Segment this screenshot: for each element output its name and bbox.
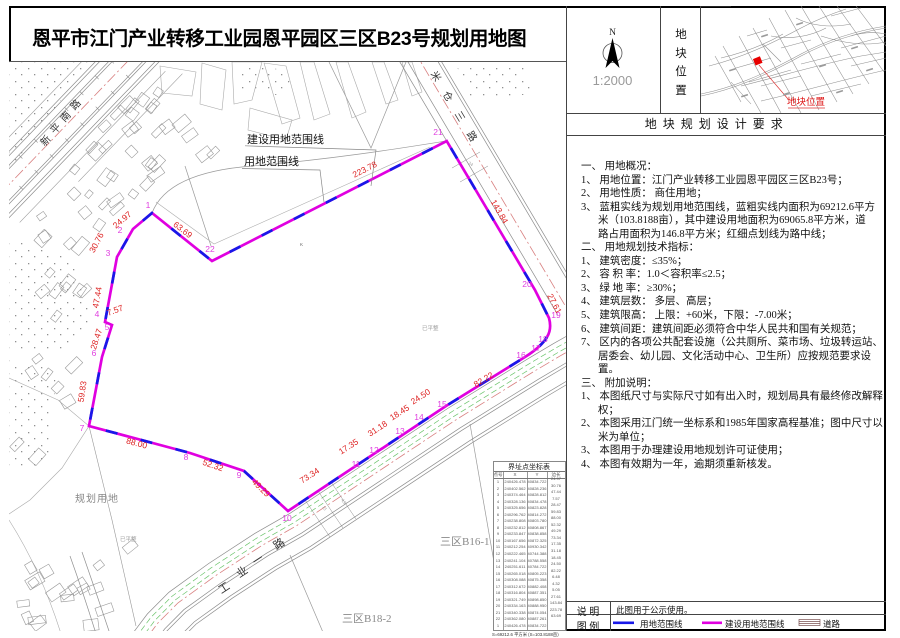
svg-text:19: 19 [551,310,561,320]
svg-text:8: 8 [184,452,189,462]
svg-text:3: 3 [106,248,111,258]
svg-text:已平整: 已平整 [120,535,137,543]
svg-text:13: 13 [395,426,405,436]
svg-text:15: 15 [437,399,447,409]
svg-text:21: 21 [433,127,443,137]
svg-text:11: 11 [352,459,361,469]
svg-text:已平整: 已平整 [422,324,439,332]
svg-text:20: 20 [522,279,532,289]
svg-text:三区B16-1: 三区B16-1 [440,536,490,548]
svg-text:三区B18-2: 三区B18-2 [342,613,392,625]
svg-text:2: 2 [118,225,123,235]
svg-text:用地范围线: 用地范围线 [244,154,299,168]
svg-text:1: 1 [146,200,151,210]
svg-text:建设用地范围线: 建设用地范围线 [247,132,324,146]
svg-text:7: 7 [80,423,85,433]
svg-text:22: 22 [205,244,215,254]
svg-text:6: 6 [92,348,97,358]
svg-text:12: 12 [369,445,379,455]
svg-text:规划用地: 规划用地 [75,492,119,505]
svg-text:N: N [609,28,616,38]
svg-text:18: 18 [538,334,548,344]
svg-text:4: 4 [95,309,100,319]
svg-text:1:2000: 1:2000 [593,73,633,88]
svg-text:16: 16 [516,350,526,360]
svg-text:14: 14 [414,412,424,422]
svg-text:10: 10 [282,513,292,523]
svg-text:5: 5 [105,322,110,332]
svg-text:17: 17 [531,343,541,353]
svg-text:9: 9 [237,470,242,480]
svg-text:地块位置: 地块位置 [787,96,825,108]
svg-text:K: K [300,242,303,247]
